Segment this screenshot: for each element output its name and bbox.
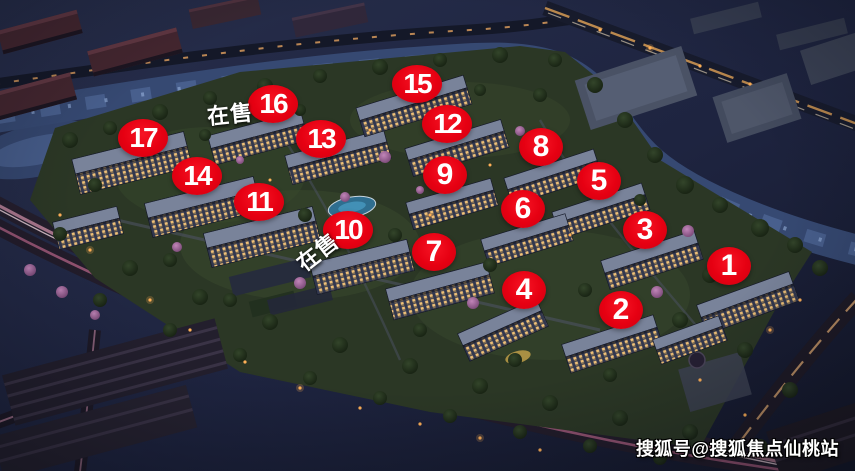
building-marker-6: 6 xyxy=(501,190,545,228)
building-marker-13: 13 xyxy=(296,120,346,158)
building-marker-3: 3 xyxy=(623,211,667,249)
building-marker-9: 9 xyxy=(423,156,467,194)
building-marker-5: 5 xyxy=(577,162,621,200)
building-marker-7: 7 xyxy=(412,233,456,271)
building-marker-2: 2 xyxy=(599,291,643,329)
building-marker-14: 14 xyxy=(172,157,222,195)
building-marker-4: 4 xyxy=(502,271,546,309)
building-marker-17: 17 xyxy=(118,119,168,157)
building-marker-8: 8 xyxy=(519,128,563,166)
on-sale-label: 在售 xyxy=(205,95,254,132)
marker-layer: 1234567891011121314151617在售在售 xyxy=(0,0,855,471)
building-marker-11: 11 xyxy=(234,183,284,221)
site-plan-image: 1234567891011121314151617在售在售 搜狐号@搜狐焦点仙桃… xyxy=(0,0,855,471)
building-marker-16: 16 xyxy=(248,85,298,123)
building-marker-1: 1 xyxy=(707,247,751,285)
building-marker-15: 15 xyxy=(392,65,442,103)
watermark: 搜狐号@搜狐焦点仙桃站 xyxy=(636,435,839,461)
building-marker-12: 12 xyxy=(422,105,472,143)
